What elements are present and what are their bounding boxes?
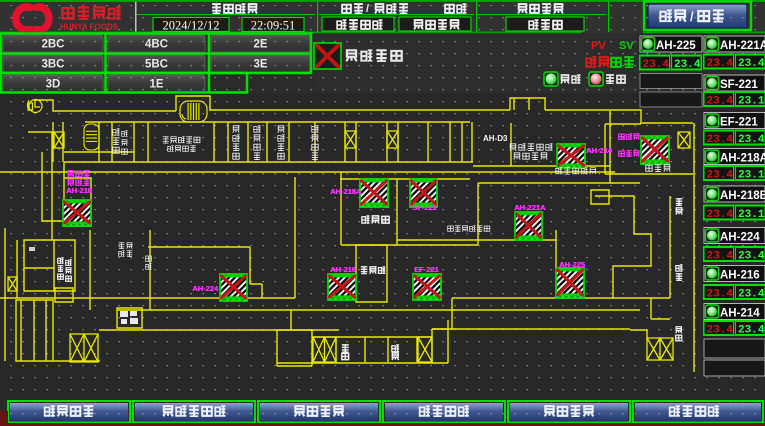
- svg-text:SV: SV: [619, 40, 634, 52]
- svg-text:23.4: 23.4: [707, 250, 734, 262]
- svg-text:23.4: 23.4: [707, 58, 734, 70]
- svg-text:PV: PV: [591, 40, 606, 52]
- svg-text:SF-221: SF-221: [412, 203, 437, 212]
- svg-text:3E: 3E: [253, 59, 267, 71]
- svg-text:SF-221: SF-221: [720, 79, 758, 91]
- svg-text:23.4: 23.4: [738, 58, 765, 70]
- svg-text:5BC: 5BC: [145, 59, 168, 71]
- svg-text:/: /: [690, 9, 694, 24]
- svg-text:23.4: 23.4: [738, 288, 765, 300]
- svg-text:23.1: 23.1: [738, 169, 765, 181]
- svg-text:AH-224: AH-224: [720, 231, 760, 243]
- svg-text:23.4: 23.4: [707, 169, 734, 181]
- svg-text:23.4: 23.4: [738, 324, 765, 336]
- svg-text:AH-214: AH-214: [586, 146, 613, 155]
- svg-text:22:09:51: 22:09:51: [251, 19, 295, 33]
- svg-text:AH-218A: AH-218A: [720, 152, 765, 164]
- svg-text:AH-218B: AH-218B: [720, 190, 765, 202]
- svg-text:AH-218A: AH-218A: [330, 187, 362, 196]
- svg-text:23.4: 23.4: [738, 134, 765, 146]
- svg-text:HUNYA FOODS: HUNYA FOODS: [60, 23, 119, 32]
- svg-text:23.4: 23.4: [707, 288, 734, 300]
- svg-text:AH-216: AH-216: [720, 269, 760, 281]
- svg-text:23.4: 23.4: [707, 209, 734, 221]
- svg-text:AH-221A: AH-221A: [514, 203, 546, 212]
- svg-text:/: /: [366, 3, 369, 15]
- svg-text:AH-216: AH-216: [330, 265, 356, 274]
- svg-text:23.4: 23.4: [707, 134, 734, 146]
- svg-text:3D: 3D: [46, 79, 61, 91]
- svg-text:3BC: 3BC: [41, 59, 64, 71]
- svg-text:23.4: 23.4: [643, 59, 670, 71]
- svg-text:2BC: 2BC: [41, 39, 64, 51]
- svg-text:2024/12/12: 2024/12/12: [163, 19, 220, 33]
- svg-text:EF-221: EF-221: [720, 116, 758, 128]
- svg-text:23.4: 23.4: [738, 250, 765, 262]
- svg-text:2E: 2E: [253, 39, 267, 51]
- svg-text:1E: 1E: [149, 79, 163, 91]
- svg-text:AH-221A: AH-221A: [720, 40, 765, 52]
- svg-text:AH-225: AH-225: [559, 260, 585, 269]
- svg-text:AH-214: AH-214: [720, 307, 760, 319]
- svg-text:AH-218: AH-218: [66, 186, 92, 195]
- svg-text:23.1: 23.1: [738, 209, 765, 221]
- svg-text:23.4: 23.4: [707, 95, 734, 107]
- svg-text:23.1: 23.1: [738, 95, 765, 107]
- svg-text:AH-D3: AH-D3: [483, 134, 508, 143]
- svg-text:EF-221: EF-221: [414, 265, 439, 274]
- svg-text:23.4: 23.4: [674, 59, 701, 71]
- svg-text:AH-225: AH-225: [656, 40, 696, 52]
- svg-text:23.4: 23.4: [707, 324, 734, 336]
- svg-text:4BC: 4BC: [145, 39, 168, 51]
- svg-text:AH-224: AH-224: [193, 284, 220, 293]
